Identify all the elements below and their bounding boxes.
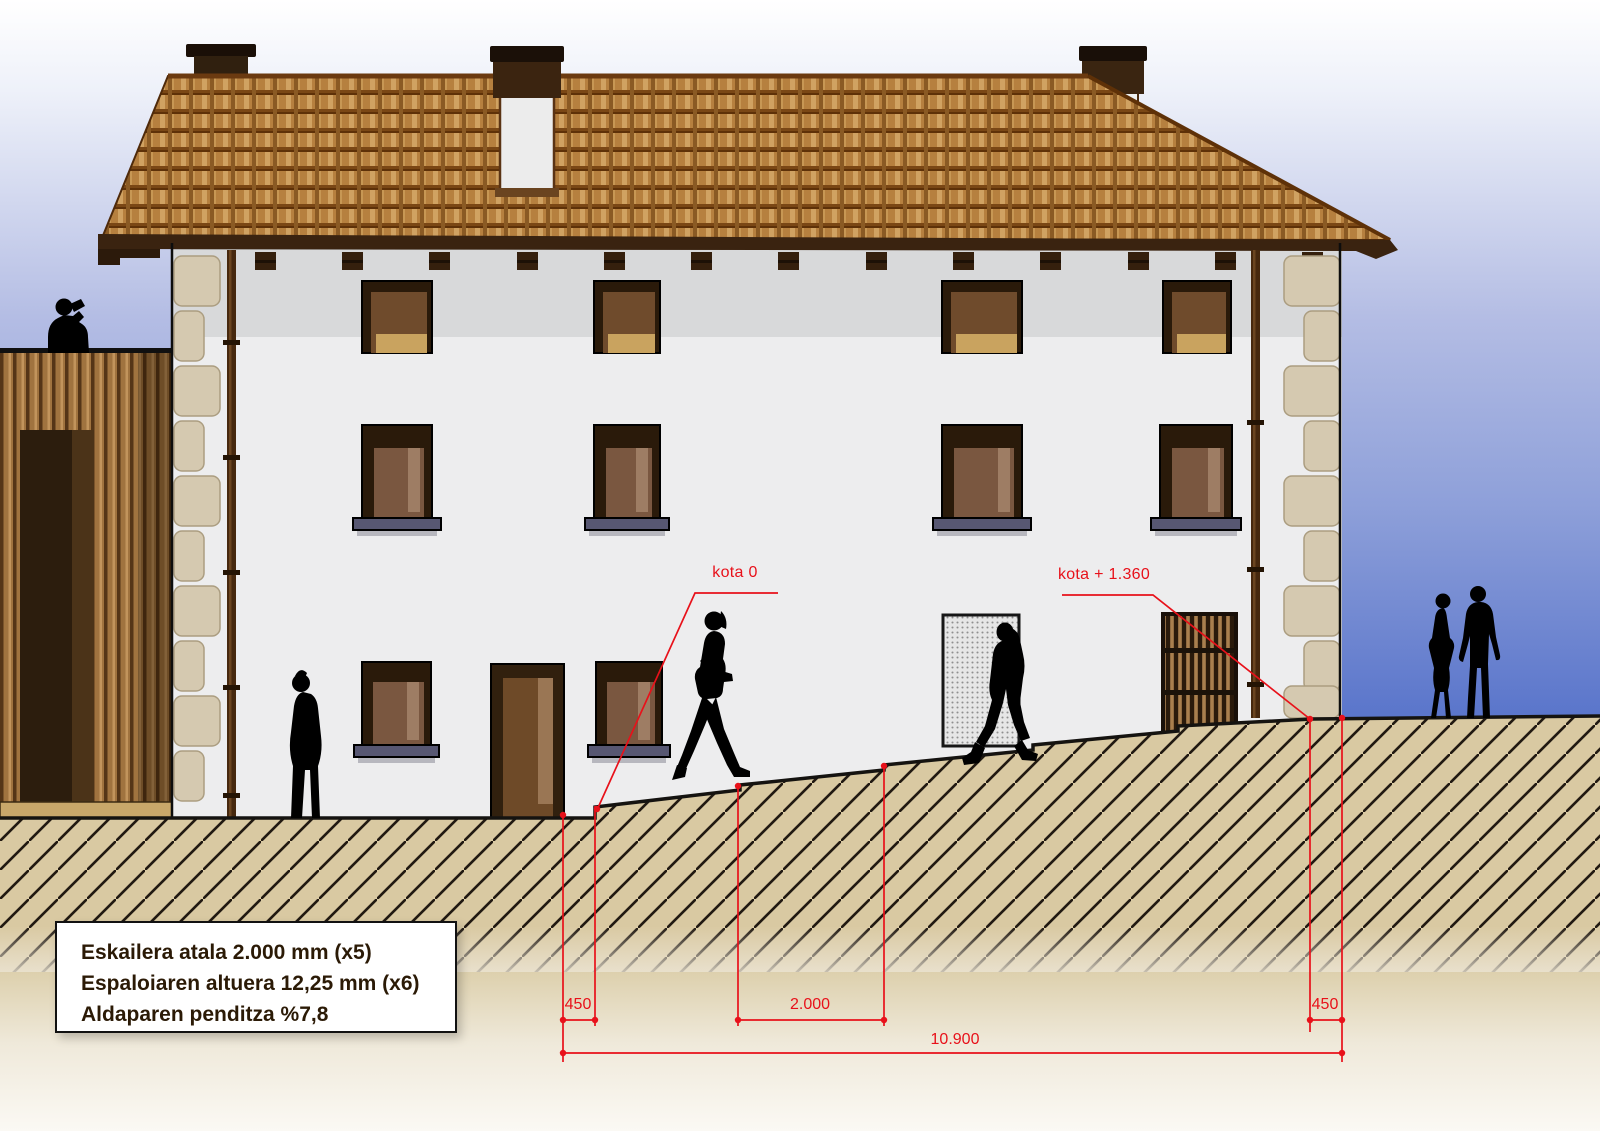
annex-shadow xyxy=(138,352,172,805)
attic-window-2 xyxy=(594,281,660,353)
ground-window-1 xyxy=(354,662,439,763)
farmhouse xyxy=(98,44,1398,821)
dim-450-right-label: 450 xyxy=(1302,996,1348,1014)
legend-box: Eskailera atala 2.000 mm (x5) Espaloiare… xyxy=(55,921,457,1033)
legend-line-3: Aldaparen penditza %7,8 xyxy=(81,999,455,1030)
chimney-middle xyxy=(490,46,564,197)
floor2-window-1 xyxy=(353,425,441,536)
floor2-window-3 xyxy=(933,425,1031,536)
floor2-window-2 xyxy=(585,425,669,536)
dim-10900-label: 10.900 xyxy=(912,1031,998,1049)
elevation-drawing: kota 0 kota + 1.360 450 2.000 450 10.900… xyxy=(0,0,1600,1131)
entrance-door xyxy=(491,664,564,818)
annex-door-jamb xyxy=(72,430,94,808)
legend-line-2: Espaloiaren altuera 12,25 mm (x6) xyxy=(81,968,455,999)
dim-2000-label: 2.000 xyxy=(768,996,852,1014)
attic-window-4 xyxy=(1163,281,1231,353)
attic-window-1 xyxy=(362,281,432,353)
floor2-window-4 xyxy=(1151,425,1241,536)
kota-1360-label: kota + 1.360 xyxy=(1056,566,1152,584)
legend-line-1: Eskailera atala 2.000 mm (x5) xyxy=(81,937,455,968)
attic-window-3 xyxy=(942,281,1022,353)
kota-0-label: kota 0 xyxy=(690,564,780,582)
dim-450-left-label: 450 xyxy=(555,996,601,1014)
wooden-annex xyxy=(0,348,172,819)
